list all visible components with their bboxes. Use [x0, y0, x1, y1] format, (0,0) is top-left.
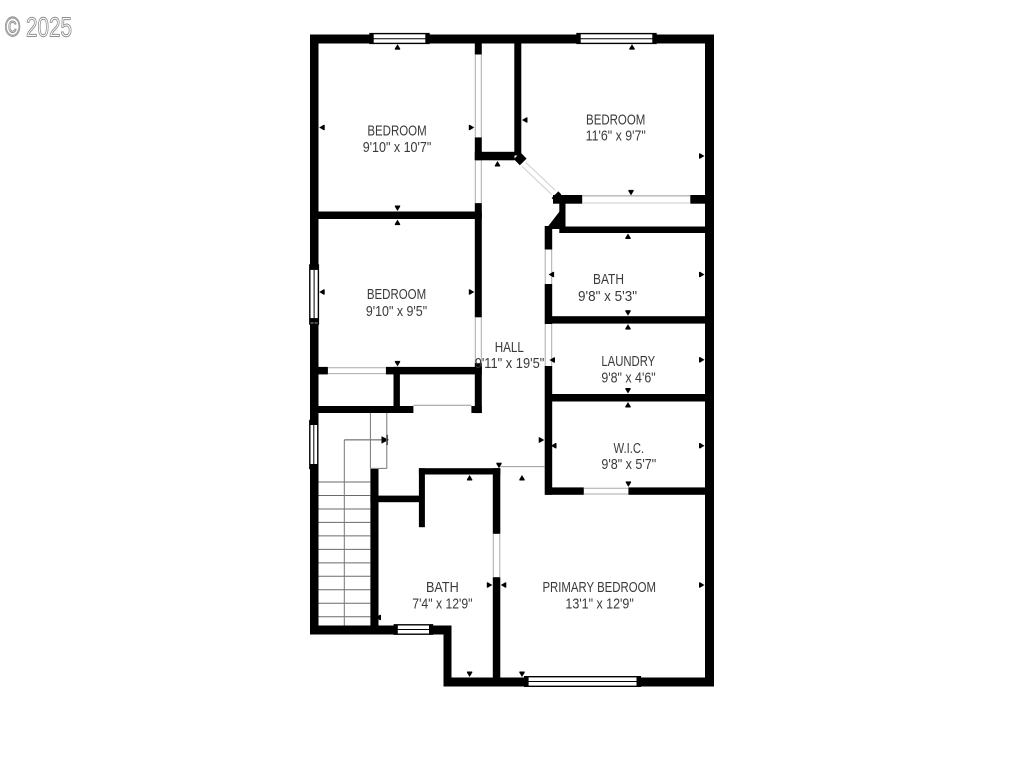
svg-text:9'8" x 4'6": 9'8" x 4'6": [601, 370, 655, 387]
svg-text:9'10" x 9'5": 9'10" x 9'5": [366, 303, 427, 320]
svg-text:7'4" x 12'9": 7'4" x 12'9": [412, 595, 472, 612]
svg-text:© 2025: © 2025: [5, 12, 72, 43]
svg-text:BEDROOM: BEDROOM: [367, 286, 426, 303]
svg-text:BATH: BATH: [593, 271, 624, 288]
svg-text:9'8" x 5'7": 9'8" x 5'7": [601, 456, 656, 473]
svg-text:PRIMARY BEDROOM: PRIMARY BEDROOM: [542, 579, 656, 596]
svg-text:11'6" x 9'7": 11'6" x 9'7": [586, 128, 646, 145]
svg-text:9'11" x 19'5": 9'11" x 19'5": [475, 355, 545, 372]
svg-text:13'1" x 12'9": 13'1" x 12'9": [565, 595, 633, 612]
svg-text:BEDROOM: BEDROOM: [586, 112, 645, 129]
svg-text:LAUNDRY: LAUNDRY: [601, 353, 655, 370]
svg-text:W.I.C.: W.I.C.: [614, 440, 645, 457]
svg-text:HALL: HALL: [495, 339, 524, 356]
svg-text:BEDROOM: BEDROOM: [367, 122, 426, 139]
svg-text:BATH: BATH: [426, 579, 459, 596]
svg-text:9'10" x 10'7": 9'10" x 10'7": [363, 139, 432, 156]
svg-text:9'8" x 5'3": 9'8" x 5'3": [578, 288, 637, 305]
